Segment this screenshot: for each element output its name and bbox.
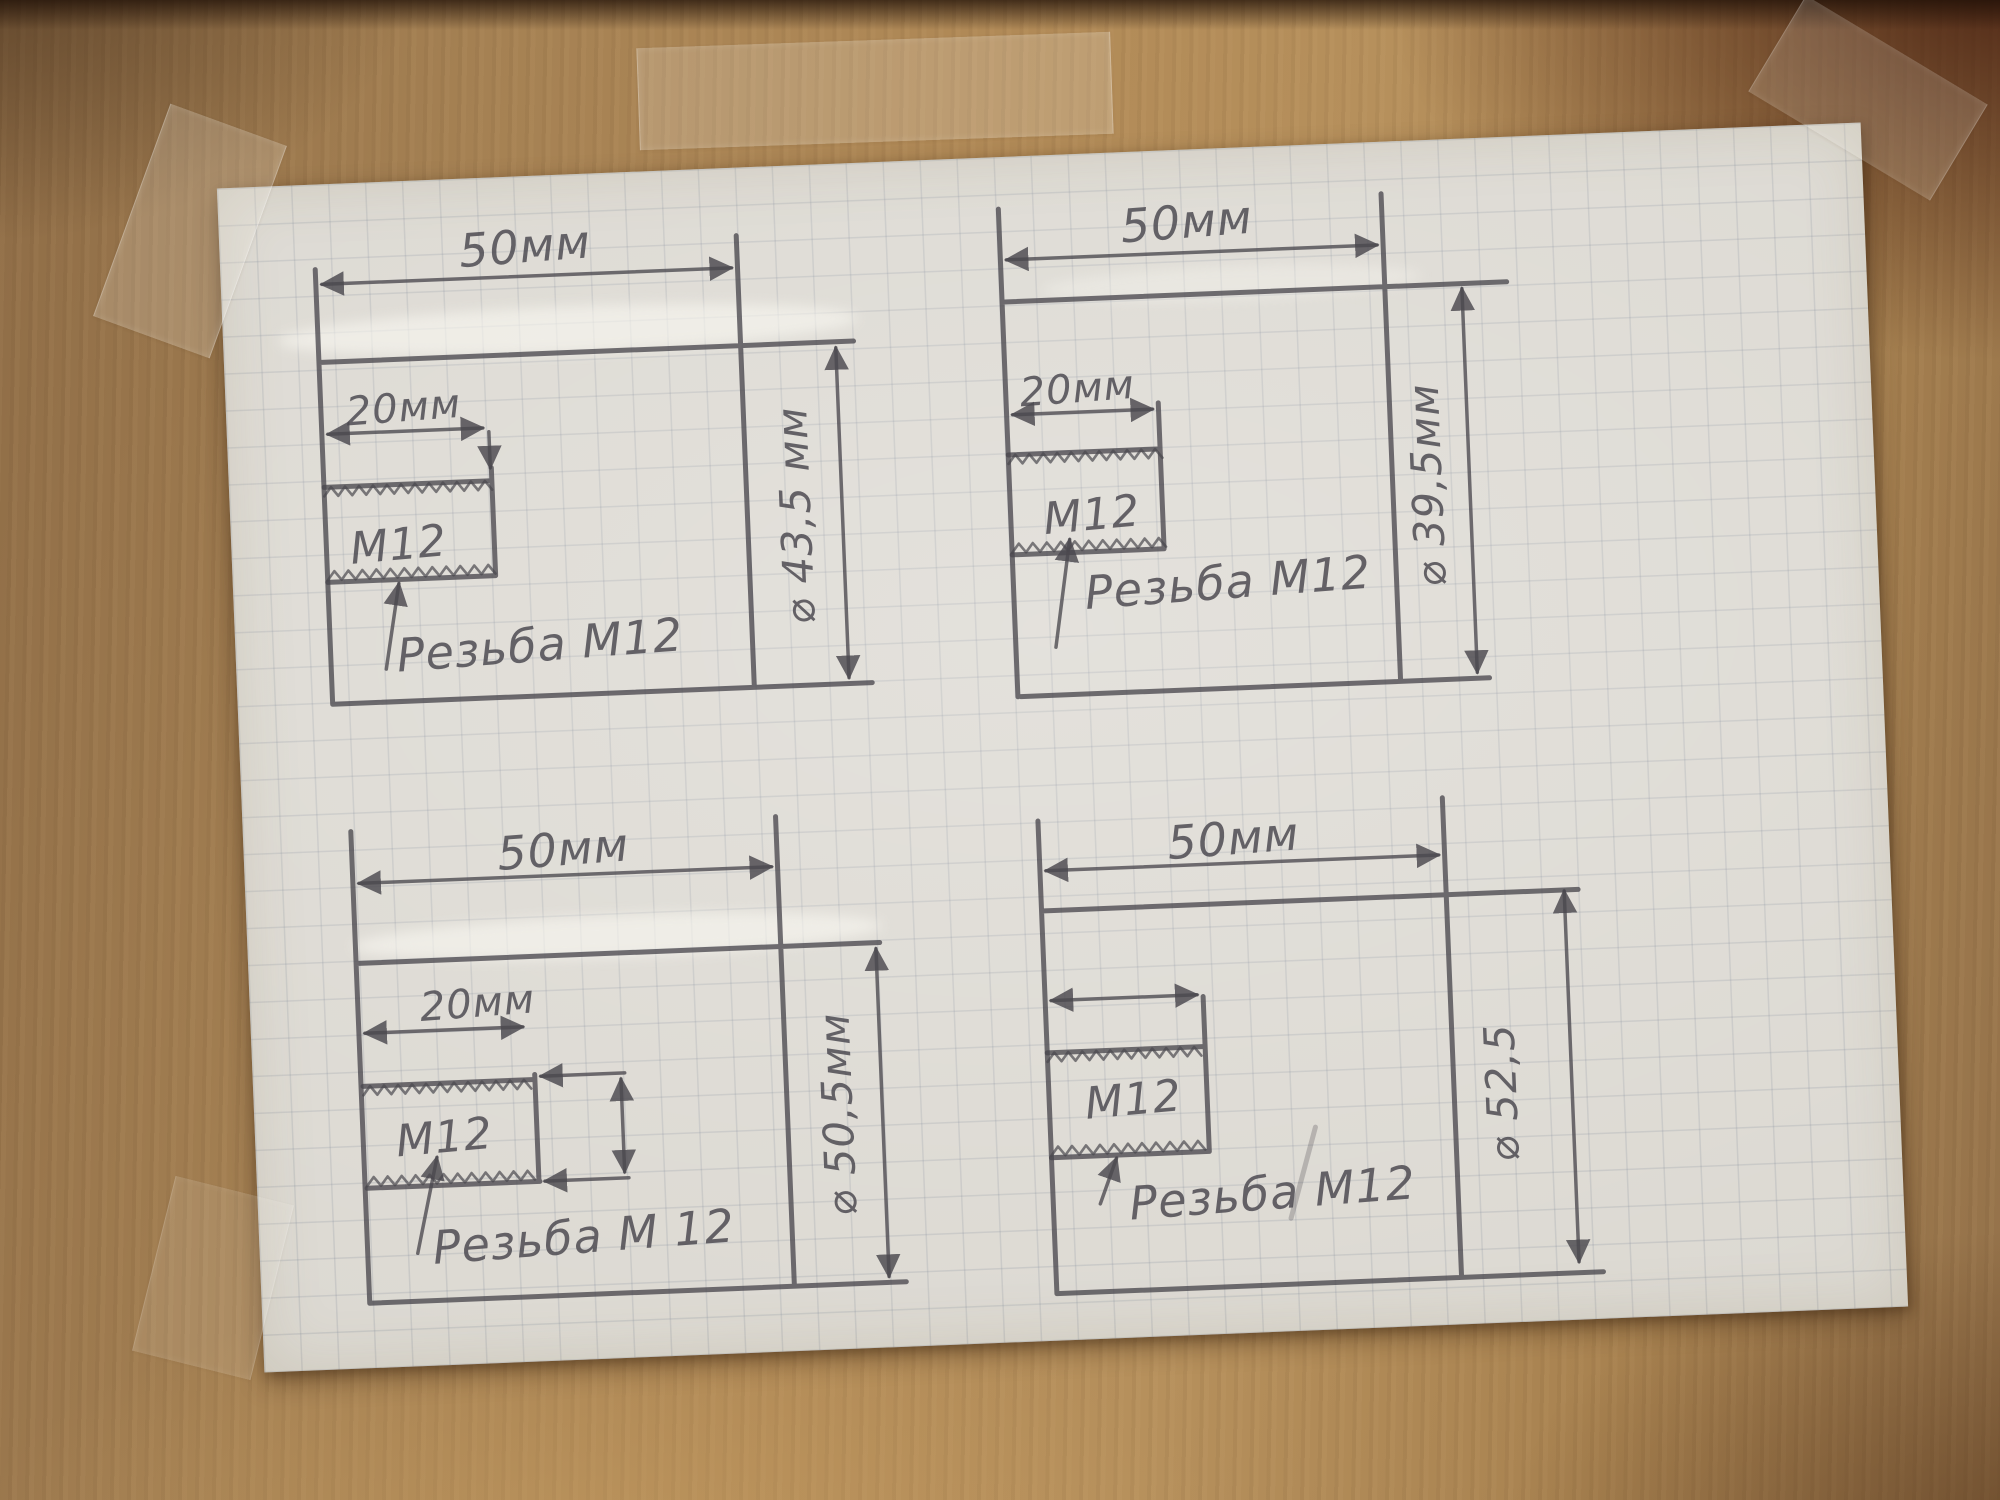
dim-line-diameter [876,949,889,1277]
wood-table-background: { "colors": { "pencil": "#4a484e", "pape… [0,0,2000,1500]
drawing-bottom-left: 50мм 20мм М12 Резьба М 12 ⌀ 50,5мм [351,807,907,1303]
leader-line [1099,1158,1119,1204]
step-dim-connector-top [541,1073,625,1076]
thread-length-label: 20мм [418,976,536,1031]
dim-corner-arrow [489,432,490,468]
step-dim-connector-bottom [545,1178,629,1181]
length-label: 50мм [1165,806,1301,870]
diameter-label: ⌀ 50,5мм [809,1012,866,1217]
thread-note-label: Резьба М12 [395,607,685,682]
drawing-top-left: 50мм 20мм М12 Резьба М12 ⌀ 43,5 мм [313,204,872,705]
diameter-label: ⌀ 52,5 [1474,1023,1529,1163]
step-dim-vertical [621,1079,625,1172]
tape-strip-top [636,32,1113,150]
length-label: 50мм [1119,190,1255,254]
thread-length-label: 20мм [1018,362,1136,417]
dim-line-diameter [836,348,849,678]
thread-note-label: Резьба М12 [1083,545,1373,620]
dim-line-thread-length [1051,995,1197,1001]
pencil-sketch: 50мм 20мм М12 Резьба М12 ⌀ 43,5 мм 50мм … [217,122,1908,1372]
drawing-top-right: 50мм 20мм М12 Резьба М12 ⌀ 39,5мм [998,180,1523,697]
diameter-label: ⌀ 43,5 мм [767,406,825,626]
diameter-label: ⌀ 39,5мм [1399,382,1456,587]
length-label: 50мм [457,214,593,278]
thread-size-label: М12 [1083,1070,1184,1130]
dim-line-diameter [1462,289,1477,673]
dim-line-diameter [1564,891,1579,1262]
thread-size-label: М12 [348,515,449,575]
thread-size-label: М12 [1041,485,1142,545]
graph-paper-sheet: 50мм 20мм М12 Резьба М12 ⌀ 43,5 мм 50мм … [217,122,1908,1372]
thread-length-label: 20мм [344,381,462,436]
thread-note-label: Резьба М 12 [431,1198,737,1275]
drawing-bottom-right: 50мм М12 Резьба М12 ⌀ 52,5 [1038,792,1604,1294]
thread-size-label: М12 [394,1108,495,1168]
thread-note-label: Резьба М12 [1127,1155,1417,1230]
leader-line [1052,540,1074,648]
length-label: 50мм [495,817,631,881]
